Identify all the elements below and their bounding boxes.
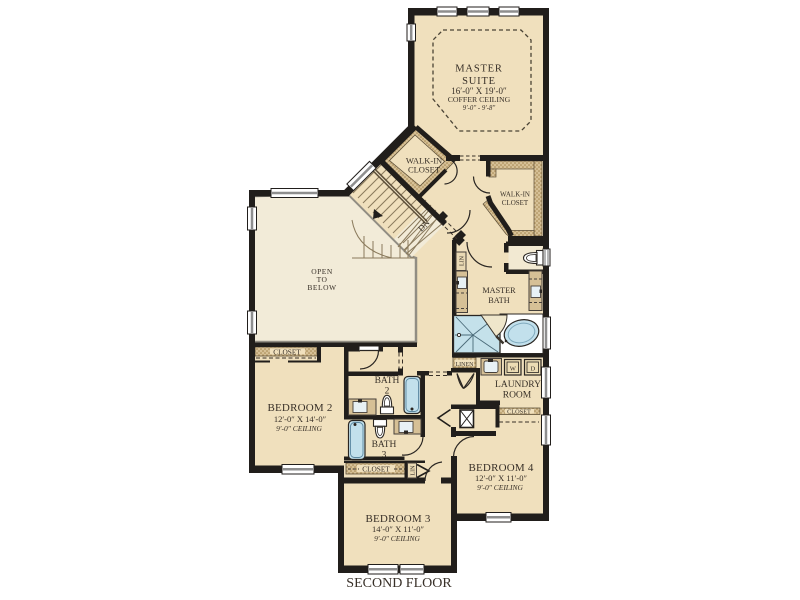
svg-text:CLOSET: CLOSET (273, 348, 301, 357)
svg-text:COFFER CEILING: COFFER CEILING (448, 95, 511, 104)
svg-text:LAUNDRY: LAUNDRY (495, 380, 541, 390)
svg-text:9′-0″ CEILING: 9′-0″ CEILING (374, 534, 420, 543)
svg-text:SECOND FLOOR: SECOND FLOOR (346, 576, 452, 591)
svg-text:BELOW: BELOW (307, 283, 337, 292)
svg-text:LIN: LIN (460, 255, 466, 266)
svg-text:CLOSET: CLOSET (362, 465, 390, 474)
svg-text:BATH: BATH (372, 440, 397, 450)
svg-text:CLOSET: CLOSET (507, 409, 531, 416)
svg-text:BATH: BATH (375, 376, 400, 386)
svg-text:WALK-IN: WALK-IN (500, 191, 530, 199)
svg-text:ROOM: ROOM (503, 391, 532, 401)
svg-text:LIN: LIN (411, 465, 417, 476)
svg-text:CLOSET: CLOSET (502, 199, 529, 207)
svg-text:BATH: BATH (488, 296, 509, 305)
svg-text:14′-0″ X 11′-0″: 14′-0″ X 11′-0″ (372, 524, 424, 534)
svg-text:LINEN: LINEN (456, 362, 475, 368)
svg-text:MASTER: MASTER (482, 286, 516, 295)
svg-text:9′-0″ CEILING: 9′-0″ CEILING (276, 424, 322, 433)
svg-text:BEDROOM 2: BEDROOM 2 (267, 402, 332, 414)
svg-text:CLOSET: CLOSET (408, 165, 441, 175)
svg-text:9′-0″ - 9′-8″: 9′-0″ - 9′-8″ (463, 105, 496, 112)
svg-text:12′-0″ X 14′-0″: 12′-0″ X 14′-0″ (274, 414, 327, 424)
svg-text:D: D (530, 366, 535, 373)
svg-text:12′-0″ X 11′-0″: 12′-0″ X 11′-0″ (475, 473, 527, 483)
svg-text:MASTER: MASTER (455, 64, 502, 75)
svg-text:9′-0″ CEILING: 9′-0″ CEILING (477, 483, 523, 492)
svg-text:W: W (510, 366, 517, 373)
